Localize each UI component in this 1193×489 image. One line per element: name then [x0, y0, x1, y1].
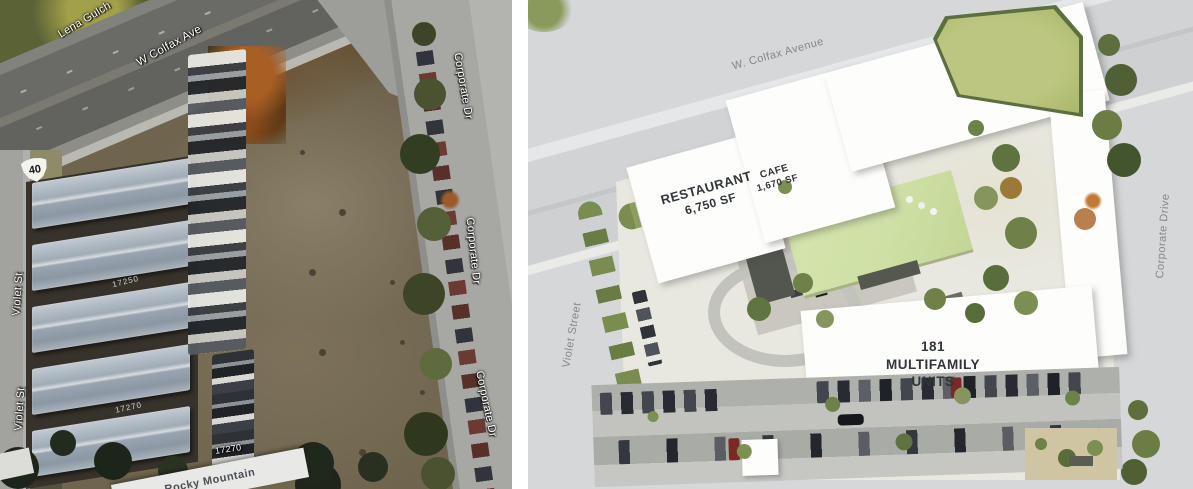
- multifamily-label: 181 MULTIFAMILY UNITS: [858, 338, 1008, 391]
- corner-garden-trees: [1035, 438, 1047, 450]
- pergola: [1069, 456, 1093, 466]
- multifamily-count: 181: [858, 338, 1008, 356]
- before-after-site-comparison: Rocky Mountain Lena Gulch W Colfax Ave 4…: [0, 0, 1193, 489]
- plan-label-corporate: Corporate Drive: [1154, 191, 1172, 282]
- orange-tree: [1084, 192, 1102, 210]
- route-40-number: 40: [28, 163, 42, 177]
- multifamily-type: MULTIFAMILY: [858, 356, 1008, 374]
- corporate-tree-row-top: [1098, 34, 1120, 56]
- bottom-tree-shadows: [50, 430, 76, 456]
- warehouse-roof-4: [32, 344, 190, 415]
- parking-structure: [741, 439, 778, 476]
- corner-garden: [1025, 428, 1117, 480]
- multifamily-units: UNITS: [858, 373, 1008, 391]
- corporate-tree-row: [412, 22, 436, 46]
- parked-rv-strip: [188, 49, 246, 355]
- parking-trees: [647, 411, 658, 422]
- umbrella-dots: [906, 196, 913, 203]
- red-car-bottom-row: [728, 438, 740, 460]
- offsite-green-corner: [528, 0, 574, 32]
- red-tree: [440, 190, 460, 210]
- parking-cars-row-left: [600, 389, 721, 415]
- dirt-bushes: [300, 150, 305, 155]
- warehouse-roof-3: [32, 282, 190, 353]
- corporate-tree-row-bottom: [1128, 400, 1148, 420]
- black-car-aisle: [838, 414, 864, 426]
- satellite-panel: Rocky Mountain Lena Gulch W Colfax Ave 4…: [0, 0, 512, 489]
- site-plan-panel: W. Colfax Avenue Violet Street Corporate…: [528, 0, 1193, 489]
- east-garden-trees: [968, 120, 984, 136]
- plan-label-violet: Violet Street: [559, 295, 585, 376]
